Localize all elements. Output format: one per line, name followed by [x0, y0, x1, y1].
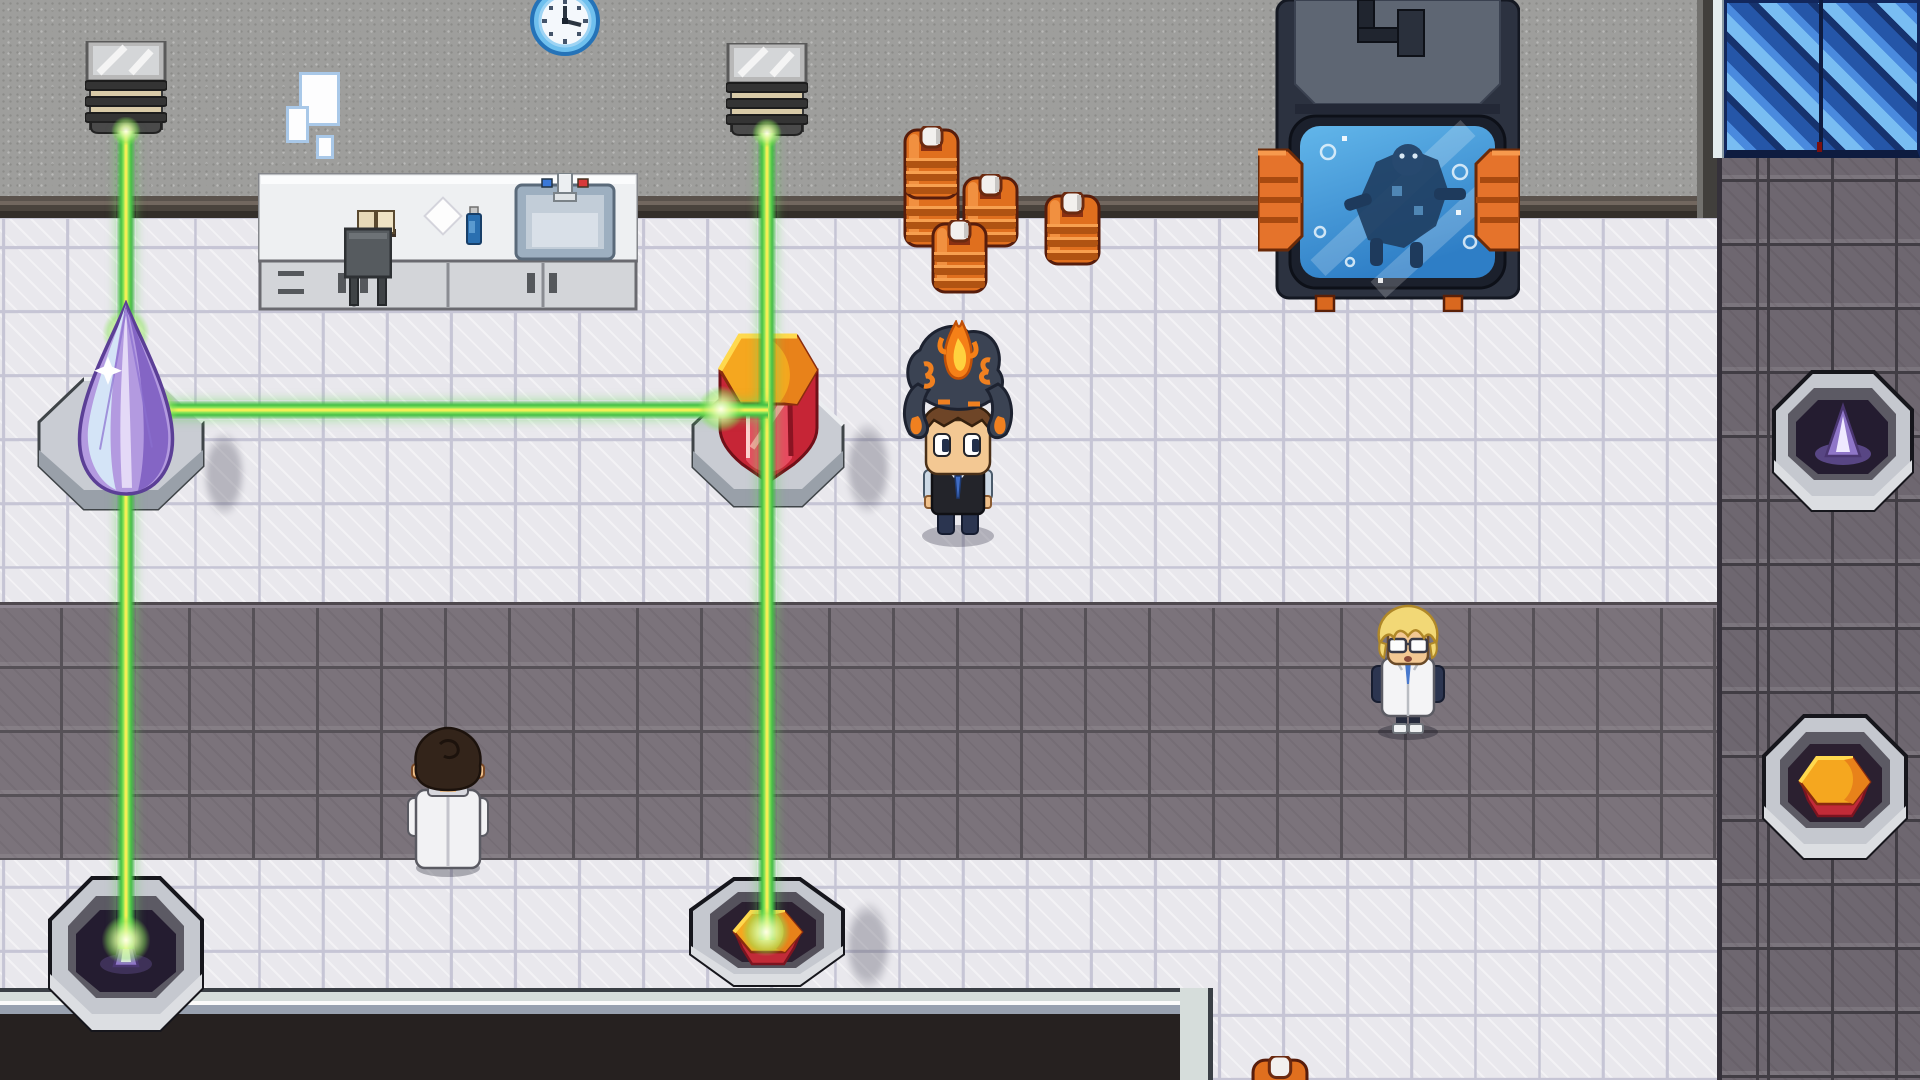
laser-beam-horizontal — [140, 400, 768, 420]
scientist-npc[interactable] — [1366, 604, 1450, 740]
specimen-tank[interactable] — [1258, 0, 1520, 312]
shadow — [844, 900, 892, 992]
barrel[interactable] — [1044, 192, 1101, 266]
game-viewport — [0, 0, 1920, 1080]
purple-crystal[interactable] — [70, 300, 182, 498]
tank-clamp-icon — [1476, 150, 1520, 250]
barrel-partial[interactable] — [1251, 1056, 1309, 1080]
barrel[interactable] — [931, 220, 988, 294]
beam-glow — [742, 908, 790, 956]
barrel[interactable] — [903, 126, 960, 200]
beam-glow — [102, 916, 150, 964]
researcher-npc[interactable] — [404, 726, 492, 878]
wall-clock — [528, 0, 602, 58]
shadow — [202, 430, 246, 518]
laser-beam-vertical — [116, 131, 136, 949]
carpet — [0, 602, 1717, 860]
lab-wall — [0, 0, 1920, 198]
door-divider — [1819, 0, 1823, 158]
receiver-pedestal-purple[interactable] — [1768, 368, 1916, 522]
receiver-pedestal-orange[interactable] — [1760, 712, 1910, 870]
door-sensor — [1817, 142, 1822, 152]
laser-beam-vertical — [757, 133, 777, 940]
blue-door[interactable] — [1713, 0, 1920, 158]
wall-poster — [286, 106, 309, 143]
player-character[interactable] — [898, 320, 1018, 552]
beam-glow — [111, 117, 141, 145]
tank-clamp-icon — [1258, 150, 1302, 250]
lab-counter — [258, 173, 638, 313]
shadow — [844, 420, 892, 516]
clock-icon — [528, 0, 602, 58]
beam-glow — [752, 119, 782, 147]
wall-poster — [316, 135, 334, 159]
dark-tile-floor — [1717, 156, 1920, 1080]
door-frame — [1713, 0, 1724, 158]
beam-glow — [698, 386, 744, 432]
cart — [344, 227, 392, 311]
